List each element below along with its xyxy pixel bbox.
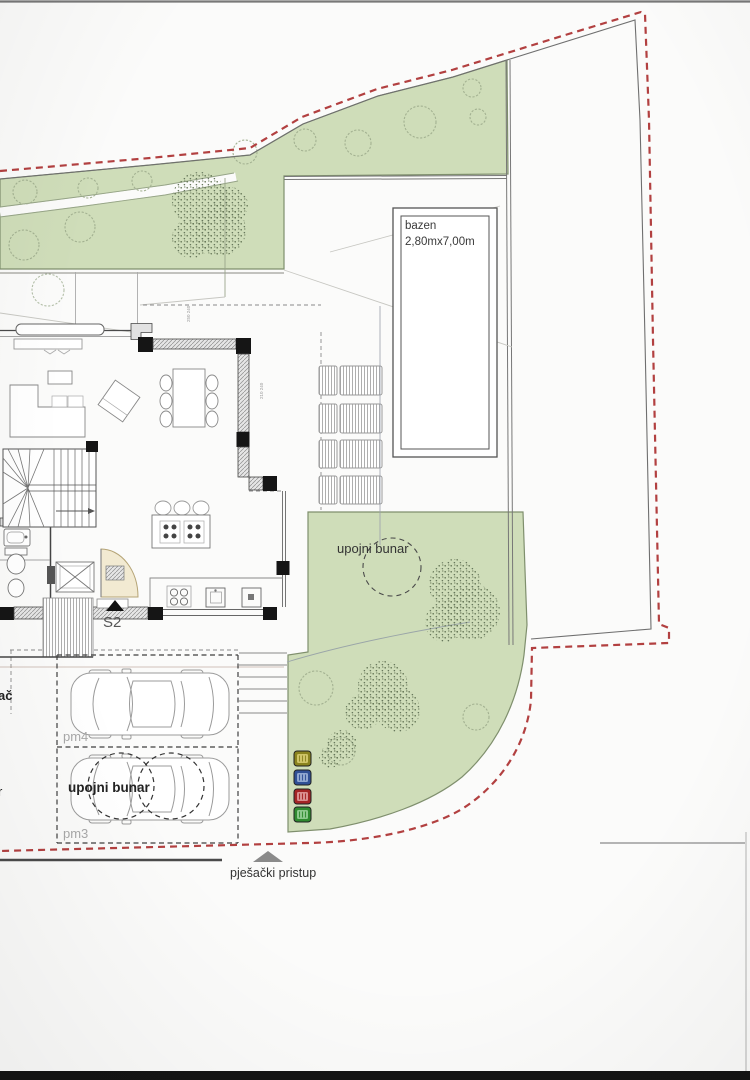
column (236, 338, 251, 354)
dining-table (160, 369, 218, 427)
site-plan-svg: bazen 2,80mx7,00m upojni bunar (0, 0, 750, 1080)
pedestrian-access-label: pješački pristup (230, 866, 316, 880)
red-bin (294, 789, 311, 804)
parking: pm4 upojni bunar pm3 (57, 655, 238, 843)
entrance-marker-label: S2 (103, 614, 121, 631)
parking-stall-pm3: upojni bunar pm3 (63, 753, 229, 841)
coffee-table (48, 371, 72, 384)
tv-cabinet (14, 339, 82, 349)
green-area-east (287, 512, 527, 832)
cooktop (170, 589, 187, 605)
edge-fragments: ač r (0, 688, 12, 799)
soakaway-parking-label: upojni bunar (68, 780, 150, 795)
bathroom-fixtures (4, 529, 30, 597)
stall-label-pm3: pm3 (63, 826, 88, 841)
car (71, 669, 229, 739)
kitchen-island (152, 501, 210, 548)
edge-fragment-bottom: r (0, 784, 3, 799)
column (277, 561, 290, 575)
column (237, 432, 250, 447)
column (86, 441, 98, 452)
parking-stall-pm4: pm4 (63, 669, 229, 744)
column (0, 607, 14, 620)
building (0, 324, 290, 621)
bidet (8, 579, 24, 597)
street-edge: pješački pristup (0, 851, 316, 880)
lounger (319, 476, 382, 504)
green-bin (294, 807, 311, 822)
stall-label-pm4: pm4 (63, 729, 88, 744)
kitchen (150, 578, 283, 607)
sofa (10, 385, 85, 437)
column (263, 476, 277, 491)
pool: bazen 2,80mx7,00m (393, 208, 497, 457)
column (138, 337, 153, 352)
living-room (10, 339, 140, 437)
edge-fragment-top: ač (0, 688, 12, 703)
toilet (7, 554, 25, 574)
pool-label-size: 2,80mx7,00m (405, 236, 475, 248)
washing-machine (47, 562, 94, 592)
blue-bin (294, 770, 311, 785)
lounger (319, 366, 382, 395)
armchair (98, 380, 140, 422)
sliding-window (16, 324, 104, 335)
yellow-bin (294, 751, 311, 766)
dimension: 210 240 (259, 382, 264, 399)
sun-loungers (319, 366, 382, 504)
interior-door (101, 549, 138, 597)
staircase (3, 441, 98, 527)
lounger (319, 404, 382, 433)
lounger (319, 440, 382, 468)
site-plan-photo: bazen 2,80mx7,00m upojni bunar (0, 0, 750, 1080)
dimension: 250 240 (186, 305, 191, 322)
access-arrow (253, 851, 283, 862)
pool-label-name: bazen (405, 220, 436, 232)
garden-steps (239, 653, 287, 713)
column (148, 607, 163, 620)
column (263, 607, 277, 620)
soakaway-garden-label: upojni bunar (337, 541, 409, 556)
